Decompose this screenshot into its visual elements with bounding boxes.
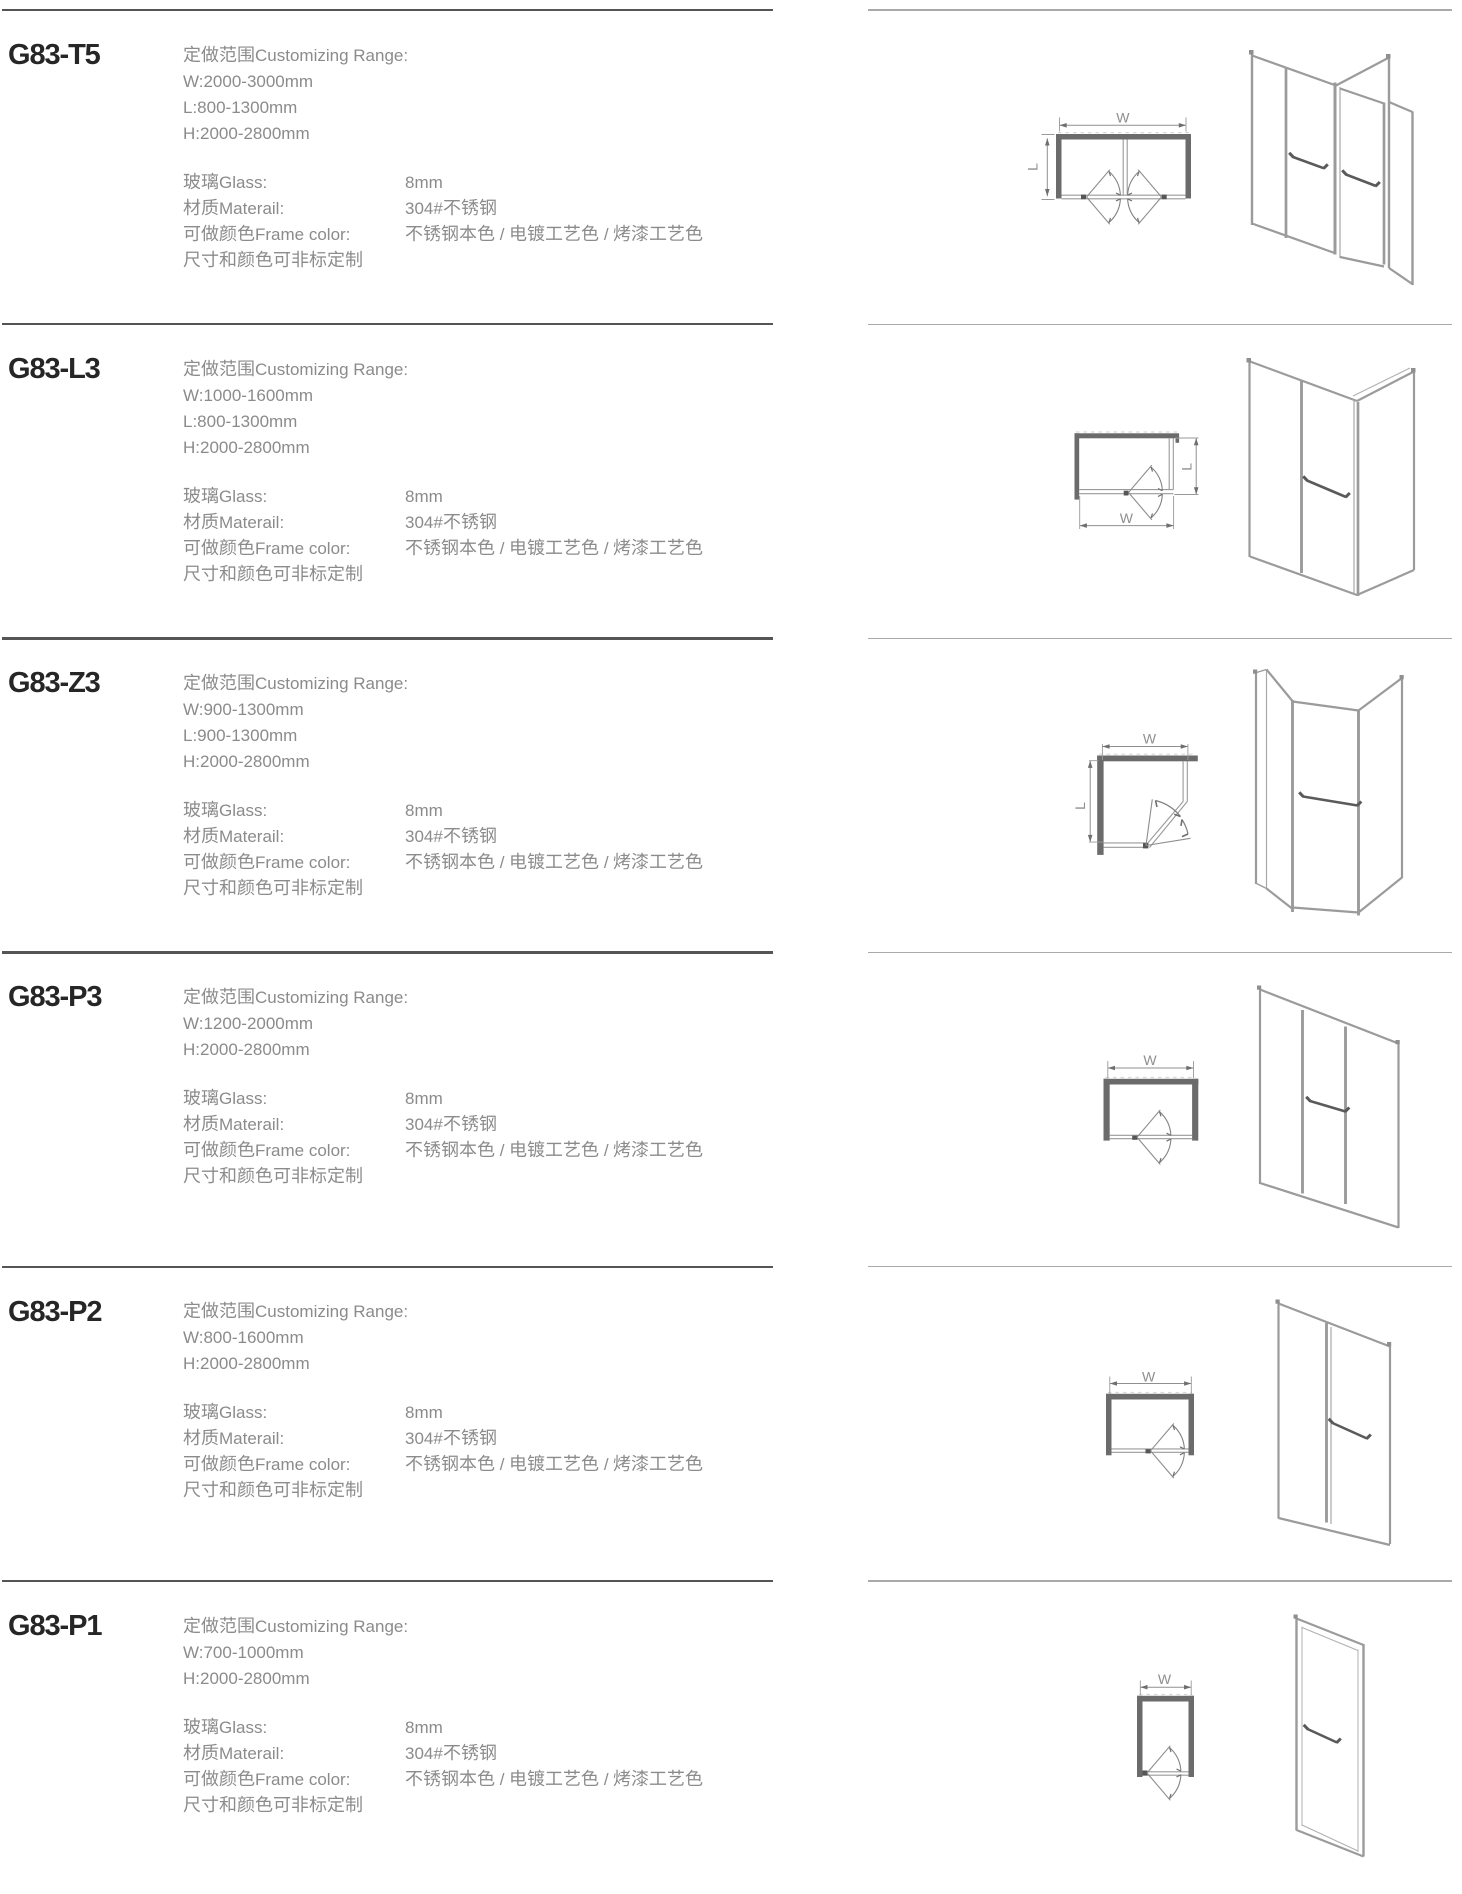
svg-text:W: W bbox=[1142, 1369, 1156, 1385]
svg-text:W: W bbox=[1116, 110, 1130, 126]
svg-text:L: L bbox=[1025, 163, 1041, 171]
svg-text:L: L bbox=[1072, 802, 1088, 810]
svg-text:W: W bbox=[1120, 510, 1134, 526]
svg-text:W: W bbox=[1143, 731, 1157, 747]
svg-text:W: W bbox=[1158, 1671, 1172, 1687]
svg-text:W: W bbox=[1143, 1052, 1157, 1068]
svg-text:L: L bbox=[1179, 463, 1195, 471]
